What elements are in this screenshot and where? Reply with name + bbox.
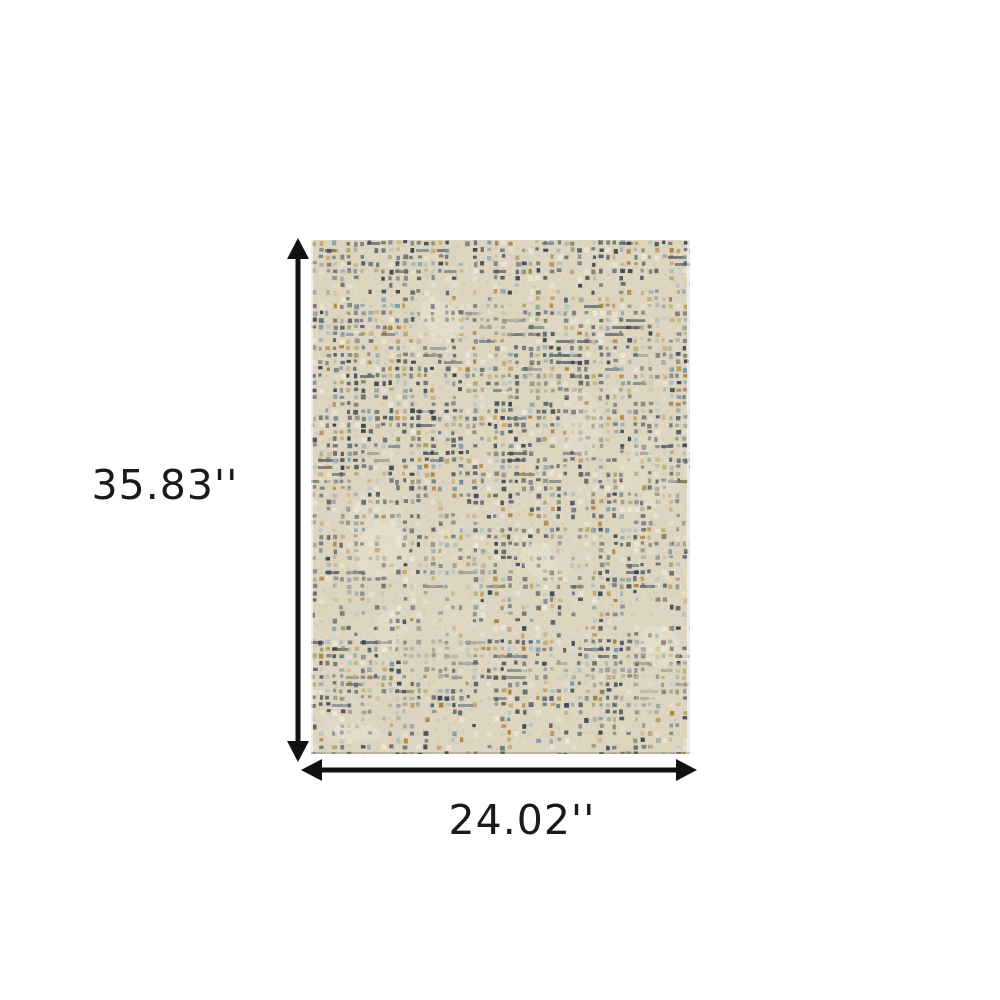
width-arrow-icon xyxy=(301,755,697,785)
width-arrow-head-right xyxy=(676,759,697,781)
height-arrow-head-top xyxy=(287,238,309,259)
rug-image xyxy=(311,240,690,754)
height-arrow-icon xyxy=(283,238,313,762)
width-dimension-label: 24.02'' xyxy=(392,796,652,844)
product-dimension-image: 35.83'' 24.02'' xyxy=(0,0,1000,1000)
height-dimension-label: 35.83'' xyxy=(55,461,275,509)
width-arrow-head-left xyxy=(301,759,322,781)
